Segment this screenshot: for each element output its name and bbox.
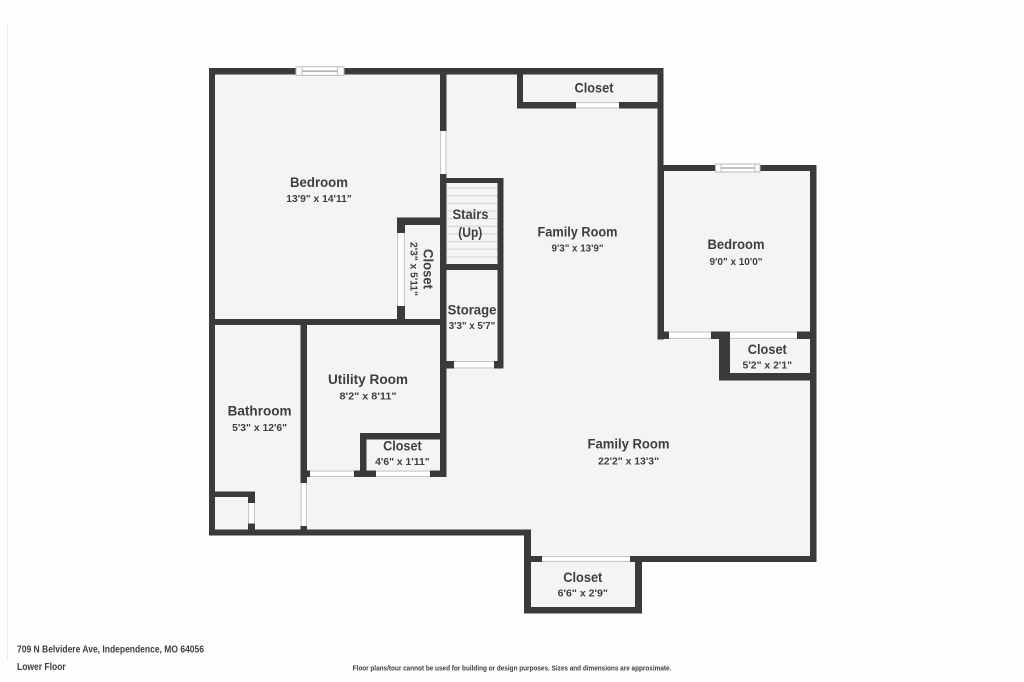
svg-text:Closet: Closet — [421, 249, 436, 289]
svg-text:Floor plans/tour cannot be use: Floor plans/tour cannot be used for buil… — [353, 664, 672, 673]
svg-text:(Up): (Up) — [458, 225, 482, 240]
svg-text:Family Room: Family Room — [538, 225, 618, 240]
svg-text:2'3" x 5'11": 2'3" x 5'11" — [408, 242, 420, 296]
svg-text:8'2" x 8'11": 8'2" x 8'11" — [340, 391, 397, 403]
svg-text:Bedroom: Bedroom — [290, 175, 348, 190]
svg-text:Closet: Closet — [563, 570, 602, 585]
svg-text:Lower Floor: Lower Floor — [17, 662, 66, 673]
svg-text:5'2" x 2'1": 5'2" x 2'1" — [743, 360, 793, 372]
svg-text:Storage: Storage — [448, 303, 497, 318]
svg-text:22'2" x 13'3": 22'2" x 13'3" — [598, 456, 659, 468]
svg-text:Stairs: Stairs — [453, 207, 489, 222]
svg-text:Utility Room: Utility Room — [328, 372, 408, 387]
svg-text:9'0" x 10'0": 9'0" x 10'0" — [710, 256, 763, 268]
svg-text:13'9" x 14'11": 13'9" x 14'11" — [286, 193, 352, 205]
svg-text:3'3" x 5'7": 3'3" x 5'7" — [449, 320, 496, 332]
svg-text:Closet: Closet — [383, 439, 422, 454]
svg-text:5'3" x 12'6": 5'3" x 12'6" — [232, 422, 287, 434]
svg-text:Closet: Closet — [575, 81, 614, 96]
svg-text:Closet: Closet — [748, 342, 787, 357]
svg-text:Family Room: Family Room — [588, 437, 670, 452]
svg-text:4'6" x 1'11": 4'6" x 1'11" — [375, 456, 430, 468]
svg-text:6'6" x 2'9": 6'6" x 2'9" — [558, 588, 608, 600]
svg-text:709 N Belvidere Ave, Independe: 709 N Belvidere Ave, Independence, MO 64… — [17, 645, 204, 656]
svg-text:Bedroom: Bedroom — [708, 237, 765, 252]
svg-text:Bathroom: Bathroom — [228, 404, 292, 419]
svg-text:9'3" x 13'9": 9'3" x 13'9" — [552, 243, 604, 255]
